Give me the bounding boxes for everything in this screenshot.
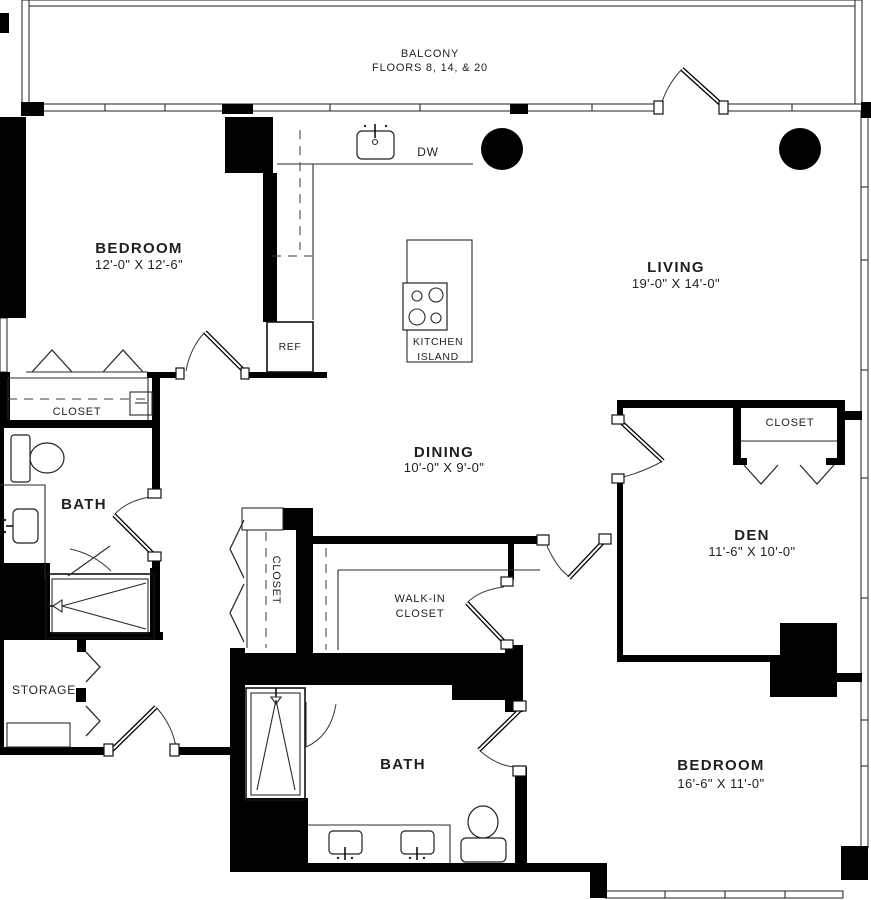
room-label-living: LIVING <box>647 259 705 276</box>
column-left <box>481 128 523 170</box>
den-closet-lines <box>741 441 837 484</box>
room-label-bedroom-bottom: BEDROOM <box>677 757 764 774</box>
entry-door <box>104 707 179 756</box>
dishwasher-label: DW <box>417 145 439 159</box>
room-label-bedroom-top: BEDROOM <box>95 240 182 257</box>
room-dims-bedroom-bottom: 16'-6" X 11'-0" <box>677 776 764 791</box>
floor-plan-page: BALCONY FLOORS 8, 14, & 20 BEDROOM 12'-0… <box>0 0 871 900</box>
vanity-bottom <box>308 825 450 863</box>
room-dims-den: 11'-6" X 10'-0" <box>708 544 795 559</box>
room-dims-bedroom-top: 12'-0" X 12'-6" <box>95 257 183 272</box>
shower-door <box>306 702 336 747</box>
bedroom-top-door <box>176 332 249 379</box>
room-label-dining: DINING <box>414 444 474 461</box>
toilet-top <box>11 435 64 482</box>
kitchen-island-label-2: ISLAND <box>417 351 459 363</box>
shower <box>246 688 305 800</box>
stove <box>403 283 447 330</box>
toilet-bottom <box>461 806 506 862</box>
bath-bottom-door <box>479 701 526 776</box>
bathtub <box>46 574 154 638</box>
walk-in-closet-label-2: CLOSET <box>396 608 445 620</box>
room-label-den: DEN <box>734 527 770 544</box>
tub-door <box>68 546 111 576</box>
den-closet-label: CLOSET <box>766 417 815 429</box>
bath-top-door <box>114 489 161 561</box>
floor-plan-svg: BALCONY FLOORS 8, 14, & 20 BEDROOM 12'-0… <box>0 0 871 900</box>
kitchen-island-label-1: KITCHEN <box>413 336 463 348</box>
room-dims-living: 19'-0" X 14'-0" <box>632 276 720 291</box>
column-right <box>779 128 821 170</box>
columns <box>481 128 821 170</box>
refrigerator-label: REF <box>279 341 302 353</box>
walk-in-closet-door <box>467 577 513 649</box>
balcony-floors-label: FLOORS 8, 14, & 20 <box>372 62 488 74</box>
balcony-label: BALCONY <box>401 48 459 60</box>
hall-door <box>537 534 611 578</box>
kitchen-fixtures <box>267 124 473 372</box>
walk-in-closet-label-1: WALK-IN <box>394 593 445 605</box>
den-door <box>612 415 663 483</box>
hall-closet-label: CLOSET <box>270 556 282 605</box>
bedroom-closet-label: CLOSET <box>53 406 102 418</box>
room-label-bath-top: BATH <box>61 496 107 513</box>
room-dims-dining: 10'-0" X 9'-0" <box>404 460 485 475</box>
kitchen-sink <box>357 124 394 159</box>
room-label-storage: STORAGE <box>12 683 76 697</box>
room-label-bath-bottom: BATH <box>380 756 426 773</box>
